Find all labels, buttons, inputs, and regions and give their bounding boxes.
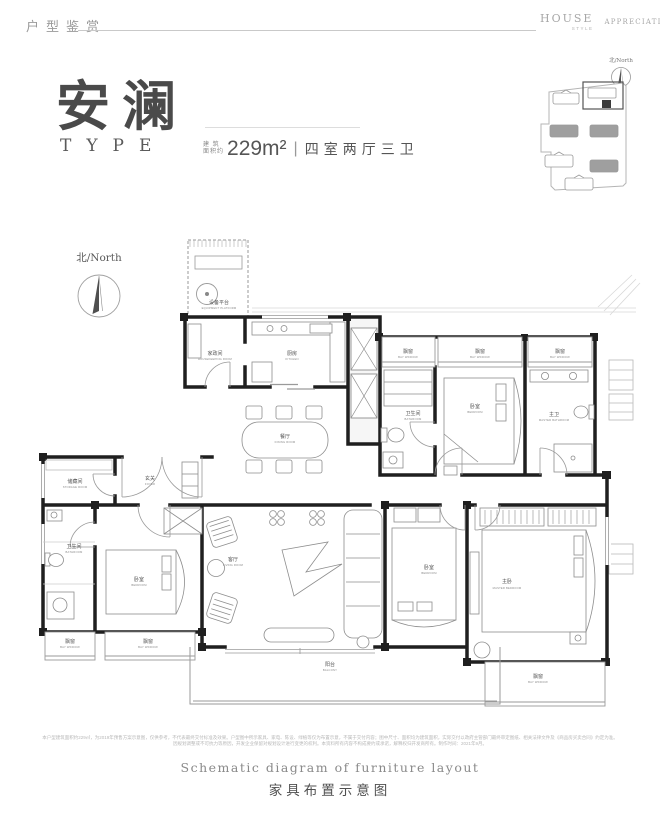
label-balcony-en: BALCONY [323,668,337,672]
spec-divider: | [294,140,298,158]
label-bedroom-left-zh: 卧室 [134,576,144,583]
label-bedroom-left-en: BEDROOM [131,583,147,587]
type-name: 安澜 [56,62,188,141]
label-bath-left-zh: 卫生间 [66,543,81,550]
label-bay-top2-en: BAY WINDOW [470,355,490,359]
label-storage-en: STORAGE ROOM [63,485,88,489]
floor-plan: 设备平台 EQUIPMENT PLATFORM 家政间 HOUSEKEEPING… [30,212,642,737]
site-key-plan: 北/North [533,52,653,207]
disclaimer: 本户型建筑面积约229㎡，为2019年预售方案示意图，仅供参考，不代表最终交付标… [25,735,635,747]
label-bay-bl2-zh: 飘窗 [143,638,153,645]
spec-row: 建 筑 面积约 229m² | 四室两厅三卫 [203,137,419,161]
label-bath-mid-zh: 卫生间 [405,410,420,417]
label-bedroom-top-en: BEDROOM [467,410,483,414]
label-master-bedroom-en: MASTER BEDROOM [493,586,522,590]
label-balcony-zh: 阳台 [325,661,335,668]
label-equipment-zh: 设备平台 [209,299,229,306]
label-master-bedroom-zh: 主卧 [502,578,512,585]
label-storage-zh: 储藏间 [67,478,82,485]
brand-left: HOUSE STYLE [540,12,593,31]
furniture [43,322,596,658]
label-living-en: LIVING ROOM [223,563,244,567]
label-housekeeping-en: HOUSEKEEPING ROOM [198,357,233,361]
plant-icons [270,511,325,526]
brand-style: STYLE [540,26,593,31]
type-label: TYPE [60,136,166,156]
area-value: 229m² [227,137,287,161]
brand-block: HOUSE STYLE APPRECIATION [540,12,652,31]
label-bay-top2-zh: 飘窗 [475,348,485,355]
label-dining-en: DINING ROOM [275,440,296,444]
area-prefix: 建 筑 面积约 [203,142,224,156]
label-foyer-en: FOYER [145,482,155,486]
label-bay-bl1-zh: 飘窗 [65,638,75,645]
footer-caption-en: Schematic diagram of furniture layout [0,760,660,775]
label-bay-top3-en: BAY WINDOW [550,355,570,359]
footer-caption-zh: 家具布置示意图 [0,779,660,799]
label-housekeeping-zh: 家政间 [207,350,222,357]
label-dining-zh: 餐厅 [280,433,290,440]
label-bay-br-zh: 飘窗 [533,673,543,680]
spec-rule [205,127,360,128]
disclaimer-line2: 因规划调整或不可抗力等原因，开发企业保留对规划设计进行变更的权利。本资料所有内容… [25,741,635,747]
label-bay-top3-zh: 飘窗 [555,348,565,355]
label-bay-br-en: BAY WINDOW [528,680,548,684]
area-prefix-line1: 建 筑 [203,142,224,149]
label-bedroom-top-zh: 卧室 [470,403,480,410]
label-bay-top1-zh: 飘窗 [403,348,413,355]
label-foyer-zh: 玄关 [145,475,155,482]
header-rule [78,30,536,31]
room-spec: 四室两厅三卫 [305,139,419,159]
label-living-zh: 客厅 [228,556,238,563]
label-equipment-en: EQUIPMENT PLATFORM [202,306,237,310]
brand-house: HOUSE [540,12,593,25]
label-kitchen-en: KITCHEN [285,357,298,361]
label-bath-mid-en: BATHROOM [405,417,422,421]
label-bay-top1-en: BAY WINDOW [398,355,418,359]
balcony-structure [190,647,500,704]
label-bay-bl1-en: BAY WINDOW [60,645,80,649]
label-bedroom-bottom-en: BEDROOM [421,571,437,575]
area-prefix-line2: 面积约 [203,149,224,156]
ac-platforms [609,360,633,574]
keyplan-north-label: 北/North [609,56,633,64]
label-bath-left-en: BATHROOM [66,550,83,554]
page-section-title: 户型鉴赏 [26,16,106,35]
label-master-bath-en: MASTER BATHROOM [539,418,570,422]
label-bedroom-bottom-zh: 卧室 [424,564,434,571]
context-lines [252,275,640,315]
label-kitchen-zh: 厨房 [287,350,297,357]
label-master-bath-zh: 主卫 [549,411,559,418]
brand-appreciation: APPRECIATION [604,18,660,26]
label-bay-bl2-en: BAY WINDOW [138,645,158,649]
